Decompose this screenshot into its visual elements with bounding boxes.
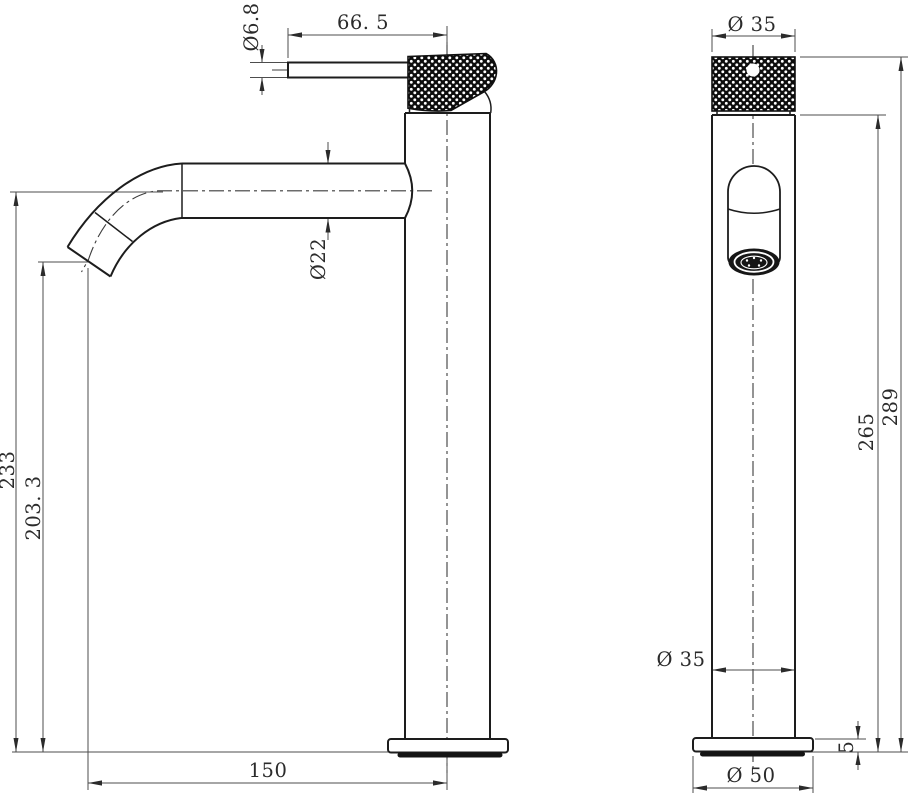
dim-label-base-thickness: 5 — [835, 741, 858, 754]
technical-drawing-sheet: Ø6.8 66. 5 Ø22 233 203. 3 — [0, 0, 911, 800]
side-view — [68, 54, 509, 758]
cap-hole — [747, 64, 760, 77]
dim-label-handle-length: 66. 5 — [337, 11, 389, 34]
faucet-technical-drawing: Ø6.8 66. 5 Ø22 233 203. 3 — [0, 0, 911, 800]
dim-spout-reach: 150 — [88, 268, 447, 790]
dim-label-base-diameter: Ø 50 — [727, 764, 776, 787]
dim-label-spout-diameter: Ø22 — [307, 238, 330, 280]
dim-total-height: 289 — [800, 57, 908, 752]
knob-far-edge-arc — [485, 92, 492, 114]
dim-base-thickness: 5 — [807, 721, 866, 770]
dim-height-spout-centerline: 233 — [0, 192, 390, 752]
dim-body-height: 265 — [800, 115, 886, 752]
front-base-flange — [693, 738, 813, 752]
front-view-dimensions: Ø 35 289 265 Ø 35 5 — [657, 13, 909, 793]
centerlines — [82, 42, 754, 774]
side-spout-centerline — [82, 191, 433, 272]
side-base-flange — [388, 739, 508, 753]
dim-label-height-289: 289 — [879, 388, 902, 427]
front-base-shadow — [700, 752, 805, 757]
dim-handle-length: 66. 5 — [288, 11, 447, 58]
dim-body-diameter: Ø 35 — [657, 648, 796, 673]
dim-height-spout-tip: 203. 3 — [22, 262, 88, 752]
dim-label-handle-diameter: Ø6.8 — [240, 3, 263, 52]
dim-label-cap-diameter: Ø 35 — [728, 13, 777, 36]
handle-knob-knurled — [408, 54, 497, 112]
dim-label-reach-150: 150 — [249, 759, 288, 782]
dim-label-height-233: 233 — [0, 451, 19, 490]
spout-outline — [68, 164, 406, 277]
dim-label-height-265: 265 — [855, 413, 878, 452]
aerator — [729, 249, 780, 276]
spout-elbow-seam — [95, 213, 133, 242]
dim-handle-diameter: Ø6.8 — [240, 3, 288, 96]
handle-rod — [288, 63, 409, 78]
dim-label-height-203: 203. 3 — [22, 475, 45, 540]
side-view-dimensions: Ø6.8 66. 5 Ø22 233 203. 3 — [0, 3, 447, 791]
dim-label-body-diameter: Ø 35 — [657, 648, 706, 671]
side-base-shadow — [398, 753, 503, 758]
